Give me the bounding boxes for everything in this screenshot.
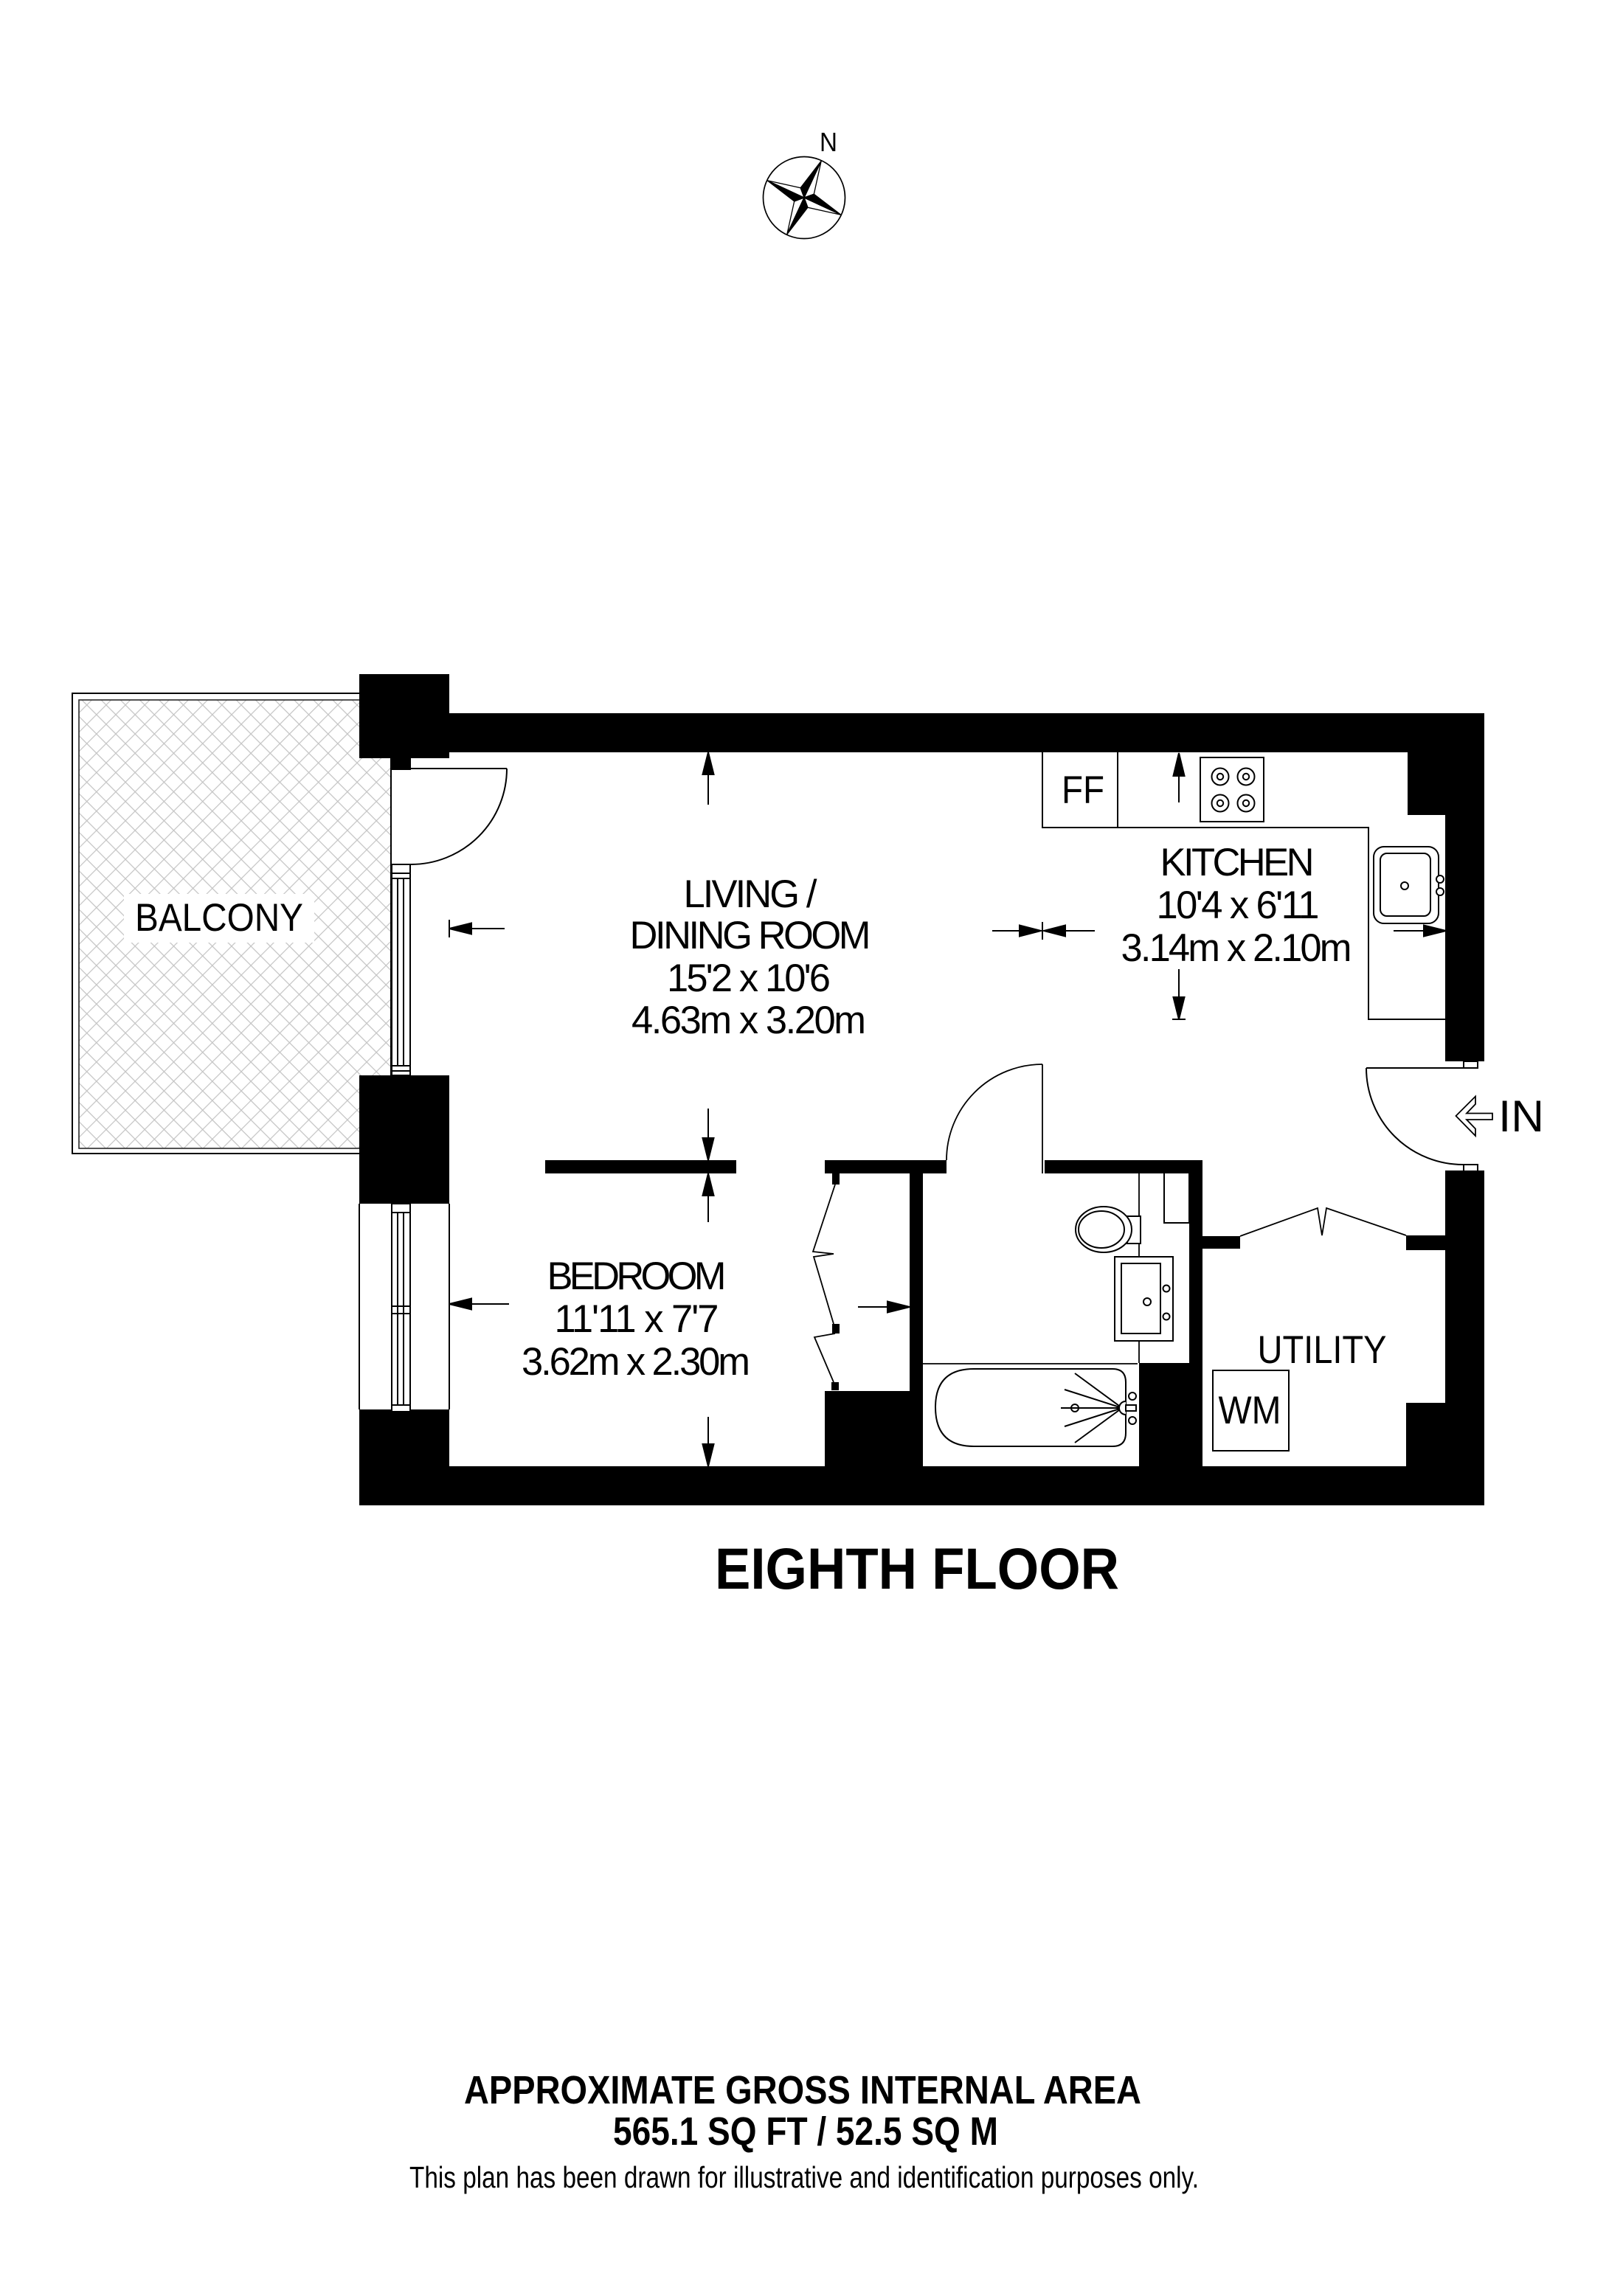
svg-text:This plan has been drawn for i: This plan has been drawn for illustrativ… bbox=[409, 2160, 1199, 2194]
svg-text:565.1 SQ FT / 52.5 SQ M: 565.1 SQ FT / 52.5 SQ M bbox=[613, 2109, 998, 2154]
svg-text:BALCONY: BALCONY bbox=[135, 896, 303, 940]
svg-text:15'2 x 10'6: 15'2 x 10'6 bbox=[667, 957, 831, 1000]
svg-text:BEDROOM: BEDROOM bbox=[547, 1255, 727, 1298]
svg-text:APPROXIMATE GROSS INTERNAL ARE: APPROXIMATE GROSS INTERNAL AREA bbox=[464, 2068, 1141, 2112]
svg-text:WM: WM bbox=[1219, 1389, 1281, 1432]
svg-text:IN: IN bbox=[1498, 1092, 1544, 1141]
svg-text:3.62m x 2.30m: 3.62m x 2.30m bbox=[522, 1340, 750, 1384]
svg-text:11'11 x 7'7: 11'11 x 7'7 bbox=[555, 1297, 719, 1341]
svg-text:3.14m x 2.10m: 3.14m x 2.10m bbox=[1121, 926, 1352, 970]
svg-text:4.63m x 3.20m: 4.63m x 3.20m bbox=[631, 999, 866, 1042]
svg-text:EIGHTH FLOOR: EIGHTH FLOOR bbox=[715, 1536, 1119, 1601]
svg-text:DINING ROOM: DINING ROOM bbox=[630, 914, 871, 957]
svg-text:10'4 x 6'11: 10'4 x 6'11 bbox=[1157, 884, 1320, 927]
svg-text:KITCHEN: KITCHEN bbox=[1160, 841, 1315, 884]
svg-text:UTILITY: UTILITY bbox=[1258, 1328, 1387, 1372]
svg-text:FF: FF bbox=[1062, 769, 1104, 812]
svg-text:LIVING /: LIVING / bbox=[684, 873, 817, 916]
svg-text:N: N bbox=[820, 127, 837, 157]
